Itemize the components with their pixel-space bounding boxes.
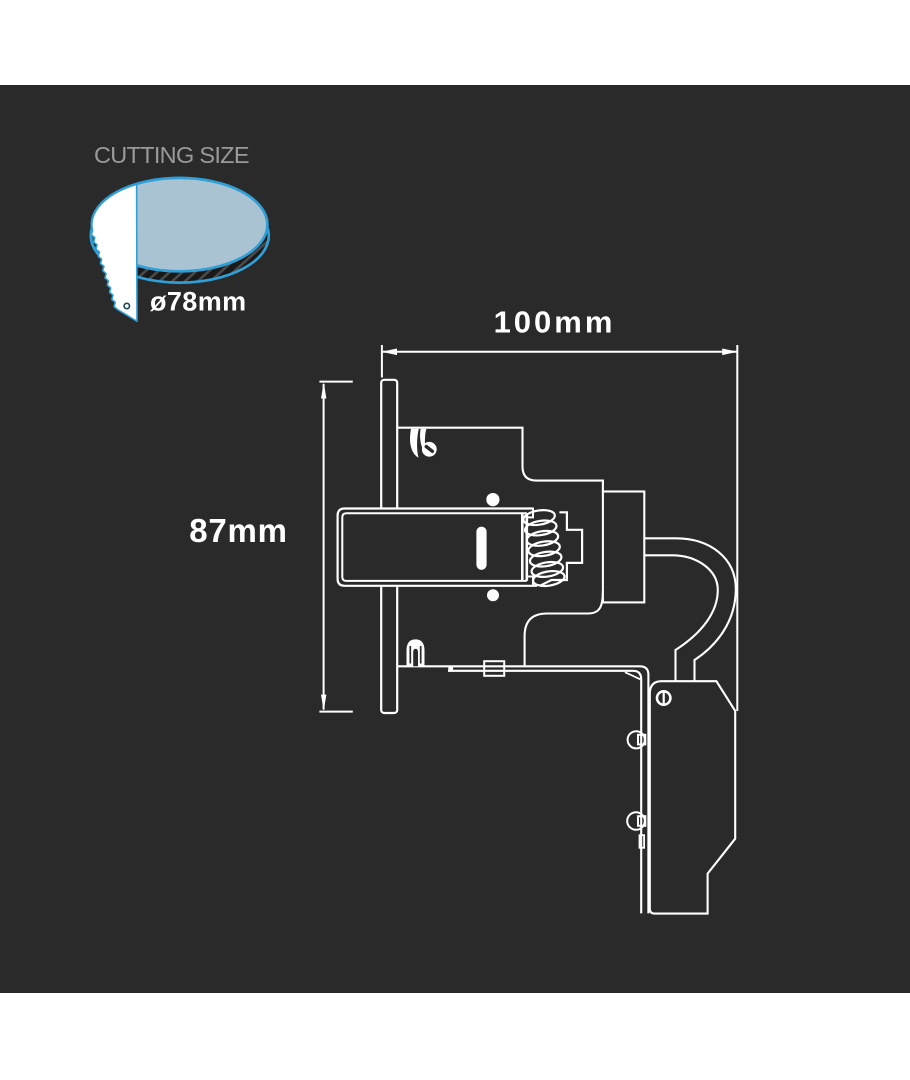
svg-text:100mm: 100mm <box>494 305 616 340</box>
svg-text:ø78mm: ø78mm <box>150 287 247 317</box>
svg-text:CUTTING SIZE: CUTTING SIZE <box>94 142 249 168</box>
svg-text:87mm: 87mm <box>189 512 288 549</box>
